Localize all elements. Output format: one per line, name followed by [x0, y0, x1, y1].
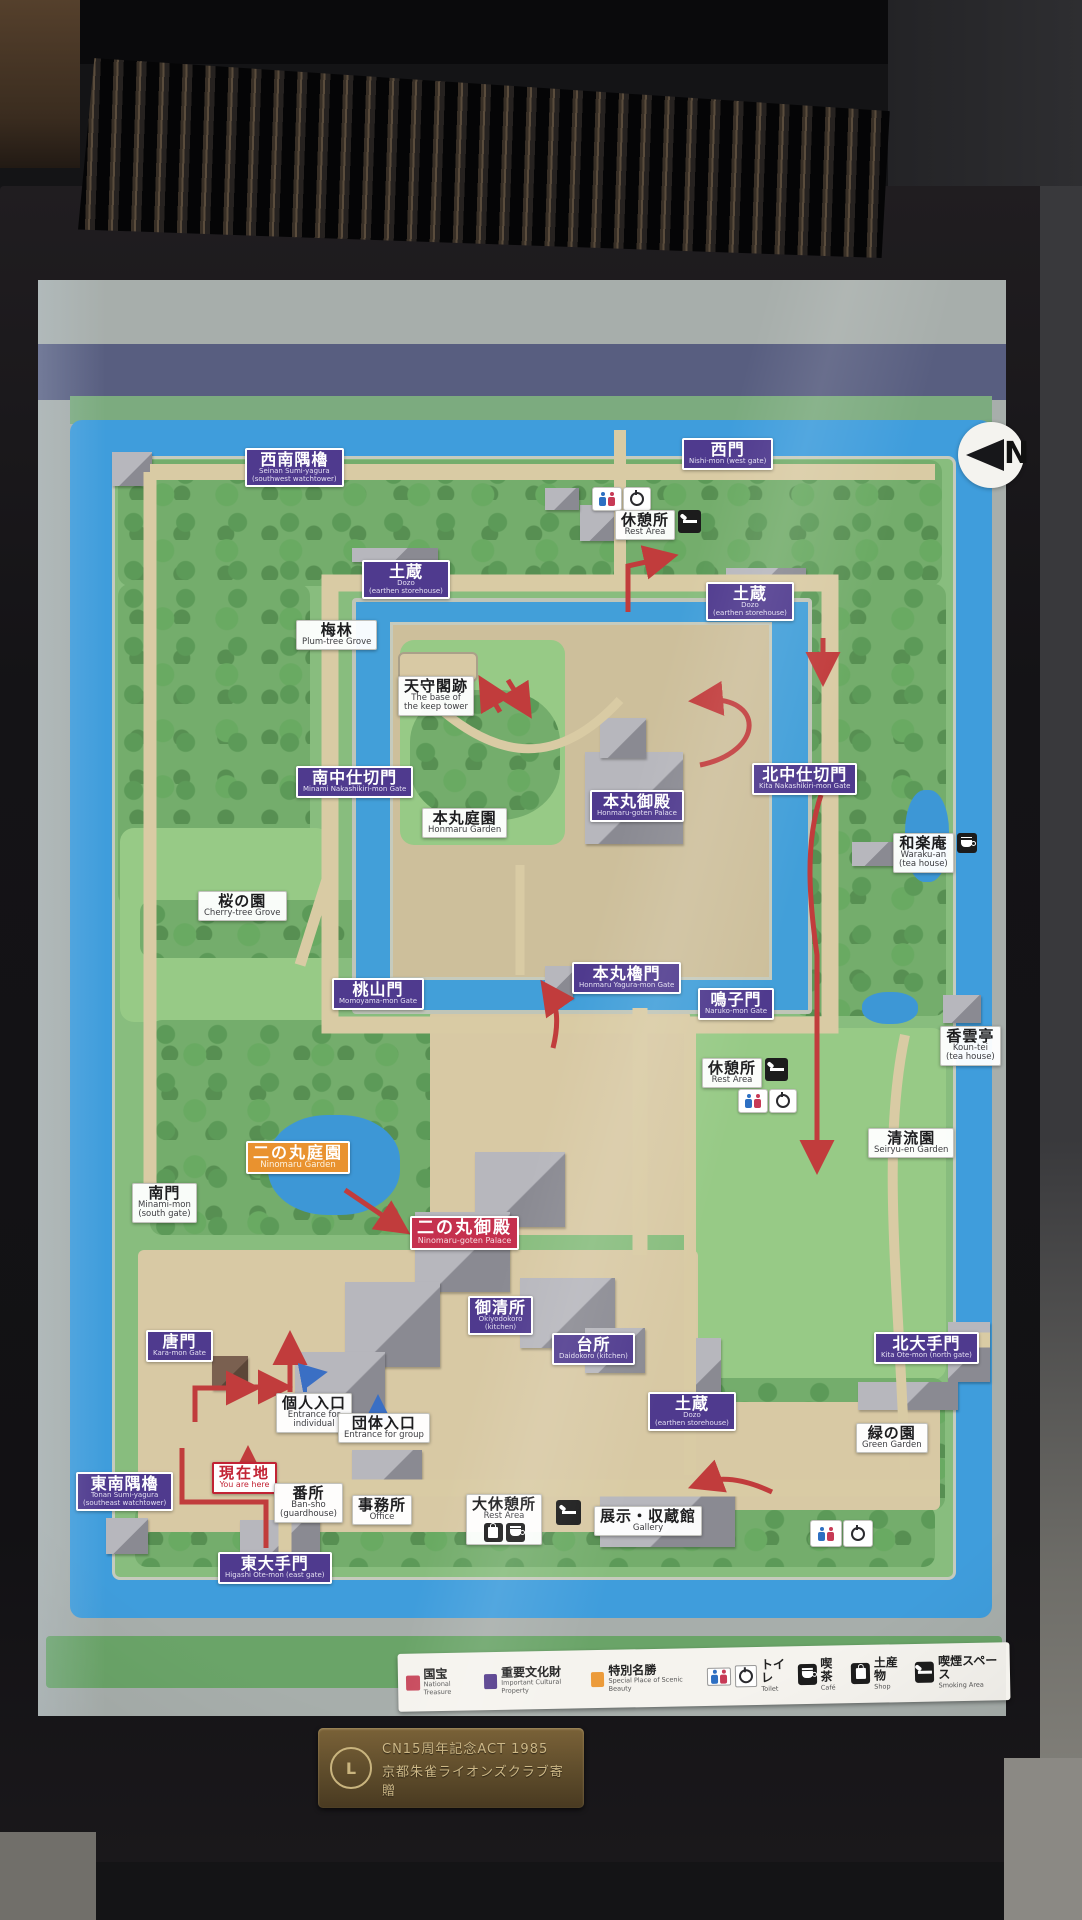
- cafe-icon: [506, 1523, 525, 1542]
- national-treasure-swatch: [406, 1675, 420, 1690]
- label-minami-mon: 南門 Minami-mon (south gate): [132, 1183, 197, 1223]
- shop-icon: [484, 1523, 503, 1542]
- label-midori-no-sono: 緑の園 Green Garden: [856, 1423, 928, 1453]
- label-bairin: 梅林 Plum-tree Grove: [296, 620, 377, 650]
- label-dozo-s: 土蔵 Dozo (earthen storehouse): [648, 1392, 736, 1431]
- label-higashi-ote-mon: 東大手門 Higashi Ote-mon (east gate): [218, 1552, 332, 1584]
- label-kita-ote-mon: 北大手門 Kita Ote-mon (north gate): [874, 1332, 979, 1364]
- label-dozo-ne: 土蔵 Dozo (earthen storehouse): [706, 582, 794, 621]
- label-honmaru-garden: 本丸庭園 Honmaru Garden: [422, 808, 507, 838]
- legend-important-cultural-property: 重要文化財 Important Cultural Property: [483, 1666, 582, 1695]
- toilet-icon: [738, 1089, 768, 1113]
- higashi-ote-mon-building: [240, 1520, 320, 1556]
- label-seiryu-en: 清流園 Seiryu-en Garden: [868, 1128, 954, 1158]
- legend-bar: 国宝 National Treasure 重要文化財 Important Cul…: [397, 1642, 1010, 1712]
- honmaru-palace-annex: [600, 718, 646, 758]
- waraku-an-building: [852, 842, 894, 866]
- label-naruko-mon: 鳴子門 Naruko-mon Gate: [698, 988, 774, 1020]
- woman-icon: [608, 497, 615, 506]
- label-dai-kyukeijo: 大休憩所 Rest Area: [466, 1494, 542, 1545]
- label-tenji-shuzokan: 展示・収蔵館 Gallery: [594, 1506, 702, 1536]
- label-honmaru-yagura-mon: 本丸櫓門 Honmaru Yagura-mon Gate: [572, 962, 681, 994]
- toilet-icon: [810, 1520, 842, 1547]
- label-tenshukaku-ato: 天守閣跡 The base of the keep tower: [398, 676, 474, 716]
- toilet-icon: [707, 1667, 731, 1685]
- label-daidokoro: 台所 Daidokoro (kitchen): [552, 1333, 635, 1365]
- label-tonan-sumi-yagura: 東南隅櫓 Tonan Sumi-yagura (southeast watcht…: [76, 1472, 173, 1511]
- toilet-icon: [592, 487, 622, 511]
- label-honmaru-goten: 本丸御殿 Honmaru-goten Palace: [590, 790, 684, 822]
- compass: N: [958, 422, 1024, 488]
- legend-national-treasure: 国宝 National Treasure: [406, 1668, 475, 1697]
- label-minami-nakashikiri-mon: 南中仕切門 Minami Nakashikiri-mon Gate: [296, 766, 413, 798]
- yagura-mon-building: [545, 966, 573, 998]
- legend-shop: 土産物 Shop: [851, 1656, 907, 1691]
- wheelchair-icon: [769, 1089, 797, 1113]
- rest-area-west: 休憩所 Rest Area: [615, 510, 701, 540]
- pavement-right: [1004, 1758, 1082, 1920]
- shop-icon: [851, 1663, 870, 1684]
- wheelchair-icon: [843, 1520, 873, 1547]
- label-dozo-nw: 土蔵 Dozo (earthen storehouse): [362, 560, 450, 599]
- label-okiyodokoro: 御清所 Okiyodokoro (kitchen): [468, 1296, 533, 1335]
- green-garden-building: [858, 1382, 958, 1410]
- storehouse-s-building: [695, 1338, 721, 1398]
- plaque-line2: 京都朱雀ライオンズクラブ寄贈: [382, 1761, 572, 1799]
- seinan-yagura-building: [112, 452, 152, 486]
- smoking-icon: [556, 1500, 581, 1525]
- wood-beam: [0, 0, 80, 168]
- cafe-icon: [797, 1664, 816, 1685]
- legend-smoking-area: 喫煙スペース Smoking Area: [915, 1655, 1002, 1690]
- vent-louvers: [78, 54, 898, 258]
- forest-north: [118, 460, 942, 586]
- man-icon: [599, 497, 606, 506]
- compass-needle-icon: [966, 439, 1004, 471]
- legend-scenic-beauty: 特別名勝 Special Place of Scenic Beauty: [591, 1663, 699, 1693]
- tonan-yagura-building: [106, 1518, 148, 1554]
- waraku-an: 和楽庵 Waraku-an (tea house): [893, 833, 977, 873]
- label-koun-tei: 香雲亭 Koun-tei (tea house): [940, 1026, 1001, 1066]
- pavement-left: [0, 1832, 96, 1920]
- outer-road-band: [38, 344, 1006, 400]
- label-momoyama-mon: 桃山門 Momoyama-mon Gate: [332, 978, 424, 1010]
- lions-club-emblem: L: [330, 1747, 372, 1789]
- label-waraku-an: 和楽庵 Waraku-an (tea house): [893, 833, 954, 873]
- label-ninomaru-garden: 二の丸庭園 Ninomaru Garden: [246, 1141, 350, 1174]
- label-dantai-iriguchi: 団体入口 Entrance for group: [338, 1413, 430, 1443]
- koun-tei-building: [943, 995, 981, 1023]
- kara-mon-building: [212, 1356, 248, 1390]
- label-seinan-sumi-yagura: 西南隅櫓 Seinan Sumi-yagura (southwest watch…: [245, 448, 344, 487]
- donor-plaque: L CN15周年記念ACT 1985 京都朱雀ライオンズクラブ寄贈: [318, 1728, 584, 1808]
- wheelchair-icon: [735, 1665, 757, 1687]
- plaque-line1: CN15周年記念ACT 1985: [382, 1738, 572, 1757]
- storehouse-ne-building: [726, 568, 806, 582]
- label-rest-area-mid: 休憩所 Rest Area: [702, 1058, 762, 1088]
- smoking-icon: [765, 1058, 788, 1081]
- cafe-icon: [957, 833, 977, 853]
- seiryuen-pond: [862, 992, 918, 1024]
- background-right: [1040, 186, 1082, 1920]
- legend-toilet: トイレ Toilet: [707, 1659, 789, 1694]
- compass-north-letter: N: [1004, 436, 1029, 471]
- wheelchair-icon: [623, 487, 651, 511]
- label-rest-area-west: 休憩所 Rest Area: [615, 510, 675, 540]
- west-toilet-building: [545, 488, 579, 510]
- office-building: [352, 1450, 422, 1490]
- label-kara-mon: 唐門 Kara-mon Gate: [146, 1330, 213, 1362]
- sign-photo: N 西南隅櫓 Seinan Sumi-yagura (southwest wat…: [0, 0, 1082, 1920]
- scenic-beauty-swatch: [591, 1671, 605, 1686]
- label-bansho: 番所 Ban-sho (guardhouse): [274, 1483, 343, 1523]
- label-jimusho: 事務所 Office: [352, 1495, 412, 1525]
- label-sakura-no-sono: 桜の園 Cherry-tree Grove: [198, 891, 287, 921]
- label-you-are-here: 現在地 You are here: [212, 1462, 277, 1494]
- label-kita-nakashikiri-mon: 北中仕切門 Kita Nakashikiri-mon Gate: [752, 763, 857, 795]
- smoking-icon: [678, 510, 701, 533]
- legend-cafe: 喫茶 Café: [797, 1658, 842, 1692]
- rest-area-mid: 休憩所 Rest Area: [702, 1058, 788, 1088]
- label-nishi-mon: 西門 Nishi-mon (west gate): [682, 438, 773, 470]
- label-ninomaru-goten: 二の丸御殿 Ninomaru-goten Palace: [410, 1216, 519, 1250]
- smoking-icon: [915, 1662, 934, 1683]
- important-cultural-property-swatch: [484, 1673, 498, 1688]
